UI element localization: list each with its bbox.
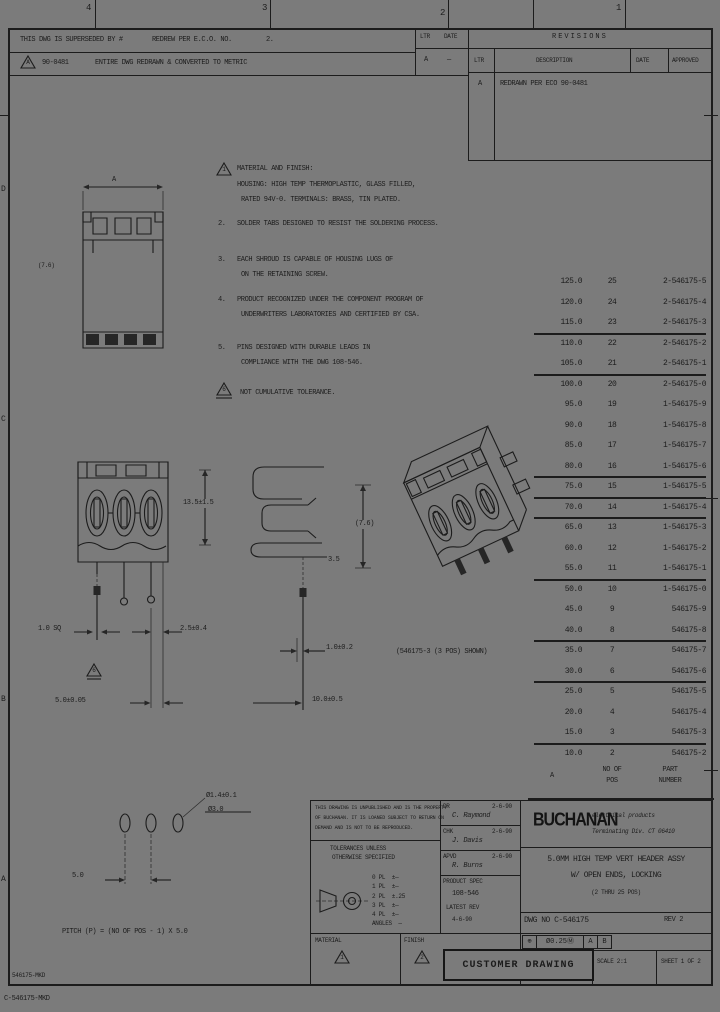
note-text: COMPLIANCE WITH THE DWG 108-546. [241,359,363,368]
positions-cell: 12 [592,544,632,553]
dim-label: 1.0±0.2 [326,644,353,653]
rev-row-description: REDRAWN PER ECO 90-0481 [500,80,587,89]
material-flag-triangle: 1 [334,950,350,964]
strip-note: THIS DWG IS SUPERSEDED BY # [20,36,123,45]
table-header-a: A [550,772,554,781]
positions-cell: 24 [592,298,632,307]
part-number-cell: 1-546175-0 [638,585,706,594]
rev-col-header: DESCRIPTION [536,57,572,65]
positions-cell: 21 [592,359,632,368]
checked-date: 2-6-90 [492,828,512,836]
note-text: PINS DESIGNED WITH DURABLE LEADS IN [237,344,370,353]
table-row: 90.0 18 1-546175-8 [528,416,714,437]
part-number-cell: 546175-2 [638,749,706,758]
dim-a-cell: 100.0 [540,380,582,389]
part-number-cell: 1-546175-4 [638,503,706,512]
tb-line [520,912,712,913]
positions-cell: 4 [592,708,632,717]
table-row: 105.0 21 2-546175-1 [528,354,714,375]
table-row: 15.0 3 546175-3 [528,723,714,744]
tolerance-value: 2 PL ±.25 [372,893,405,900]
table-row: 95.0 19 1-546175-9 [528,395,714,416]
tb-line [310,800,311,985]
tolerance-value: 4 PL ±— [372,911,398,918]
checked-name: J. Davis [452,837,482,846]
border-bottom [8,984,712,986]
table-row: 10.0 2 546175-2 [528,744,714,765]
table-row: 25.0 5 546175-5 [528,682,714,703]
rev-col-header: DATE [636,57,649,65]
dim-flag-number: 6 [86,667,102,674]
part-number-cell: 1-546175-6 [638,462,706,471]
part-number-cell: 546175-4 [638,708,706,717]
note-text: SOLDER TABS DESIGNED TO RESIST THE SOLDE… [237,220,438,229]
dim-a-cell: 95.0 [540,400,582,409]
positions-cell: 8 [592,626,632,635]
finish-flag-number: 2 [414,954,430,961]
product-spec-date: 4-6-90 [452,916,472,924]
dim-label: 1.0 SQ [38,625,61,634]
dim-a-cell: 65.0 [540,523,582,532]
dim-label: 3.5 [327,556,340,565]
product-spec-number: 108-546 [452,890,479,899]
note-text: UNDERWRITERS LABORATORIES AND CERTIFIED … [241,311,420,320]
tb-line [310,933,712,934]
table-row: 75.0 15 1-546175-5 [528,477,714,498]
strip-note: 2. [266,36,274,45]
company-line2: Terminating Div. CT 06410 [592,828,675,836]
dim-a-cell: 85.0 [540,441,582,450]
mini-rev-value: A [424,56,428,65]
legal-text: DEMAND AND IS NOT TO BE REPRODUCED. [315,824,413,832]
table-row: 30.0 6 546175-6 [528,662,714,683]
positions-cell: 22 [592,339,632,348]
microfilm-label-inner: 546175-MKD [12,972,45,980]
positions-cell: 13 [592,523,632,532]
zone-letter: A [1,875,5,885]
positions-cell: 15 [592,482,632,491]
part-number-cell: 546175-7 [638,646,706,655]
tolerance-row: 0 PL ±— [372,874,438,883]
tb-line [440,875,520,876]
rev-table-line [415,28,416,75]
dim-a-cell: 60.0 [540,544,582,553]
revision-cell: REV 2 [664,916,683,925]
tolerance-value: ANGLES — [372,920,402,927]
iso-caption: (546175-3 (3 POS) SHOWN) [396,648,487,657]
dim-a-cell: 115.0 [540,318,582,327]
part-number-cell: 2-546175-0 [638,380,706,389]
scale-cell: SCALE 2:1 [597,958,627,966]
tb-line [440,825,520,826]
part-number-cell: 1-546175-9 [638,400,706,409]
note-number: 5. [218,344,226,353]
positions-cell: 17 [592,441,632,450]
mini-rev-header: LTR [420,33,430,41]
border-top [8,28,712,30]
part-number-cell: 2-546175-5 [638,277,706,286]
tolerance-header2: OTHERWISE SPECIFIED [332,854,395,862]
rev-col-header: LTR [474,57,484,65]
dim-a-cell: 75.0 [540,482,582,491]
table-header-pos: NO OF [590,766,634,775]
hole-dim-bottom: Ø3.0 [208,806,223,815]
note-text: PRODUCT RECOGNIZED UNDER THE COMPONENT P… [237,296,423,305]
checked-label: CHK [443,828,453,836]
dim-a-cell: 80.0 [540,462,582,471]
dim-a-cell: 35.0 [540,646,582,655]
note-text: RATED 94V-0. TERMINALS: BRASS, TIN PLATE… [241,196,401,205]
table-row: 35.0 7 546175-7 [528,641,714,662]
part-number-cell: 1-546175-3 [638,523,706,532]
approved-name: R. Burns [452,862,482,871]
finish-label: FINISH [404,937,424,945]
dim-a-cell: 55.0 [540,564,582,573]
rev-table-line [468,72,712,73]
note-text: NOT CUMULATIVE TOLERANCE. [240,389,335,398]
drawn-label: DR [443,803,450,811]
gdt-datum-b: B [597,935,612,949]
fold-mark [0,115,8,116]
note-text: HOUSING: HIGH TEMP THERMOPLASTIC, GLASS … [237,181,416,190]
product-spec-label: PRODUCT SPEC [443,878,483,886]
dim-flag-triangle: 6 [86,663,102,677]
parts-table: 125.0 25 2-546175-5 120.0 24 2-546175-4 … [528,272,714,764]
zone-tick [625,0,626,28]
table-row: 65.0 13 1-546175-3 [528,518,714,539]
part-number-cell: 1-546175-8 [638,421,706,430]
part-number-cell: 546175-6 [638,667,706,676]
note-text: MATERIAL AND FINISH: [237,165,313,174]
table-header-pn: PART [640,766,700,775]
positions-cell: 5 [592,687,632,696]
tolerance-header: TOLERANCES UNLESS [330,845,386,853]
positions-cell: 16 [592,462,632,471]
revision-flag-letter: A [20,59,36,66]
part-number-cell: 1-546175-1 [638,564,706,573]
dim-a-cell: 120.0 [540,298,582,307]
tolerance-value: 3 PL ±— [372,902,398,909]
table-row: 55.0 11 1-546175-1 [528,559,714,580]
company-line: electrical products [592,812,655,820]
table-row: 85.0 17 1-546175-7 [528,436,714,457]
note-text: EACH SHROUD IS CAPABLE OF HOUSING LUGS O… [237,256,393,265]
note-number: 2. [218,220,226,229]
part-number-cell: 1-546175-2 [638,544,706,553]
drawing-title-line2: W/ OPEN ENDS, LOCKING [520,871,712,881]
positions-cell: 19 [592,400,632,409]
dim-a-cell: 10.0 [540,749,582,758]
tolerance-value: 0 PL ±— [372,874,398,881]
part-number-cell: 546175-8 [638,626,706,635]
dim-a-cell: 110.0 [540,339,582,348]
zone-number: 1 [616,3,621,13]
positions-cell: 6 [592,667,632,676]
tolerance-list: 0 PL ±—1 PL ±—2 PL ±.253 PL ±—4 PL ±—ANG… [372,874,438,930]
drawing-title-line3: (2 THRU 25 POS) [520,889,712,897]
rev-table-line [630,48,631,72]
border-left [8,28,10,986]
strip-note: REDREW PER E.C.O. NO. [152,36,232,45]
drawing-title-line1: 5.0MM HIGH TEMP VERT HEADER ASSY [520,855,712,865]
dim-a-cell: 25.0 [540,687,582,696]
mini-rev-header: DATE [444,33,457,41]
table-header-pn2: NUMBER [640,777,700,786]
front-view-drawing [30,450,250,720]
revision-flag-triangle: A [20,55,36,69]
projection-symbol [316,878,368,924]
positions-cell: 18 [592,421,632,430]
tb-line [440,850,520,851]
dim-a-cell: 105.0 [540,359,582,368]
note-flag-triangle: 1 [216,162,232,176]
part-number-cell: 2-546175-1 [638,359,706,368]
dim-a-cell: 30.0 [540,667,582,676]
dim-label: A [112,176,116,185]
material-flag-number: 1 [334,954,350,961]
zone-letter: D [1,185,5,195]
zone-number: 3 [262,3,267,13]
positions-cell: 23 [592,318,632,327]
dim-label: 5.0±0.05 [55,697,85,706]
dim-label: (7.6) [354,520,375,529]
part-number-cell: 1-546175-7 [638,441,706,450]
material-label: MATERIAL [315,937,341,945]
zone-number: 4 [86,3,91,13]
zone-tick [533,0,534,28]
dim-label: (7.6) [38,262,55,270]
zone-tick [270,0,271,28]
gdt-position-symbol: ⊕ [522,935,537,949]
dim-a-cell: 20.0 [540,708,582,717]
dim-a-cell: 15.0 [540,728,582,737]
strip-note: ENTIRE DWG REDRAWN & CONVERTED TO METRIC [95,59,247,68]
strip-divider [8,75,468,76]
dim-label: 13.5±1.5 [182,499,214,508]
drawing-number: DWG NO C-546175 [524,916,589,926]
part-number-cell: 2-546175-3 [638,318,706,327]
part-number-cell: 1-546175-5 [638,482,706,491]
part-number-cell: 546175-5 [638,687,706,696]
dim-a-cell: 40.0 [540,626,582,635]
part-number-cell: 546175-9 [638,605,706,614]
table-header-pos2: POS [590,777,634,786]
zone-tick [448,0,449,28]
table-row: 80.0 16 1-546175-6 [528,457,714,478]
note-text: ON THE RETAINING SCREW. [241,271,328,280]
positions-cell: 2 [592,749,632,758]
positions-cell: 14 [592,503,632,512]
fold-mark [704,115,718,116]
note-number: 4. [218,296,226,305]
dim-a-cell: 45.0 [540,605,582,614]
tolerance-row: 1 PL ±— [372,883,438,892]
finish-flag-triangle: 2 [414,950,430,964]
hole-dim-top: Ø1.4±0.1 [206,792,236,801]
dim-a-cell: 70.0 [540,503,582,512]
table-row: 20.0 4 546175-4 [528,703,714,724]
note-flag-number: 6 [216,386,232,393]
zone-letter: C [1,415,5,425]
footprint-drawing [55,780,325,950]
gdt-datum-a: A [583,935,598,949]
table-row: 70.0 14 1-546175-4 [528,498,714,519]
table-row: 125.0 25 2-546175-5 [528,272,714,293]
sheet-cell: SHEET 1 OF 2 [661,958,701,966]
table-row: 40.0 8 546175-8 [528,621,714,642]
tb-line [310,840,440,841]
positions-cell: 11 [592,564,632,573]
positions-cell: 3 [592,728,632,737]
table-row: 50.0 10 1-546175-0 [528,580,714,601]
note-number: 3. [218,256,226,265]
tolerance-value: 1 PL ±— [372,883,398,890]
tb-line [520,847,712,848]
customer-drawing-stamp: CUSTOMER DRAWING [443,949,594,981]
isometric-view-drawing [395,400,535,660]
zone-letter: B [1,695,5,705]
rev-table-line [468,160,712,161]
dim-label: 2.5±0.4 [180,625,207,634]
table-row: 60.0 12 1-546175-2 [528,539,714,560]
part-number-cell: 2-546175-4 [638,298,706,307]
table-row: 100.0 20 2-546175-0 [528,375,714,396]
strip-note: 90-0481 [42,59,69,68]
positions-cell: 9 [592,605,632,614]
footprint-note: PITCH (P) = (NO OF POS - 1) X 5.0 [62,928,187,937]
dim-a-cell: 90.0 [540,421,582,430]
note-flag-number: 1 [216,166,232,173]
tolerance-row: 2 PL ±.25 [372,893,438,902]
tb-line [310,800,712,801]
fold-mark [704,770,718,771]
tb-line [400,933,401,985]
rev-col-header: APPROVED [672,57,698,65]
part-number-cell: 2-546175-2 [638,339,706,348]
table-row: 110.0 22 2-546175-2 [528,334,714,355]
legal-text: THIS DRAWING IS UNPUBLISHED AND IS THE P… [315,804,447,812]
legal-text: OF BUCHANAN. IT IS LOANED SUBJECT TO RET… [315,814,444,822]
revisions-title: REVISIONS [552,33,608,42]
positions-cell: 20 [592,380,632,389]
table-row: 120.0 24 2-546175-4 [528,293,714,314]
gdt-tolerance: Ø0.25Ⓜ [536,935,584,949]
dim-label: 10.0±0.5 [312,696,342,705]
top-view-drawing [35,165,175,365]
drawn-date: 2-6-90 [492,803,512,811]
footprint-pitch: 5.0 [72,872,83,881]
stamp-text: CUSTOMER DRAWING [462,960,574,971]
dim-a-cell: 125.0 [540,277,582,286]
drawing-sheet: 4 3 2 1 D C B A THIS DWG IS SUPERSEDED B… [0,0,720,1012]
drawn-name: C. Raymond [452,812,490,821]
table-row: 115.0 23 2-546175-3 [528,313,714,334]
approved-date: 2-6-90 [492,853,512,861]
positions-cell: 7 [592,646,632,655]
dim-a-cell: 50.0 [540,585,582,594]
tolerance-row: ANGLES — [372,920,438,929]
part-number-cell: 546175-3 [638,728,706,737]
rev-row-letter: A [478,80,482,89]
microfilm-label-outer: C-546175-MKD [4,995,50,1004]
zone-tick [95,0,96,28]
note-flag-triangle: 6 [216,382,232,396]
table-row: 45.0 9 546175-9 [528,600,714,621]
positions-cell: 25 [592,277,632,286]
approved-label: APVD [443,853,456,861]
tolerance-row: 4 PL ±— [372,911,438,920]
tolerance-row: 3 PL ±— [372,902,438,911]
product-spec-rev: LATEST REV [446,904,479,912]
positions-cell: 10 [592,585,632,594]
zone-number: 2 [440,8,445,18]
tb-line [656,950,657,985]
mini-rev-value: — [447,56,451,65]
rev-table-line [668,48,669,72]
strip-divider [8,52,415,53]
rev-table-line [494,48,495,160]
